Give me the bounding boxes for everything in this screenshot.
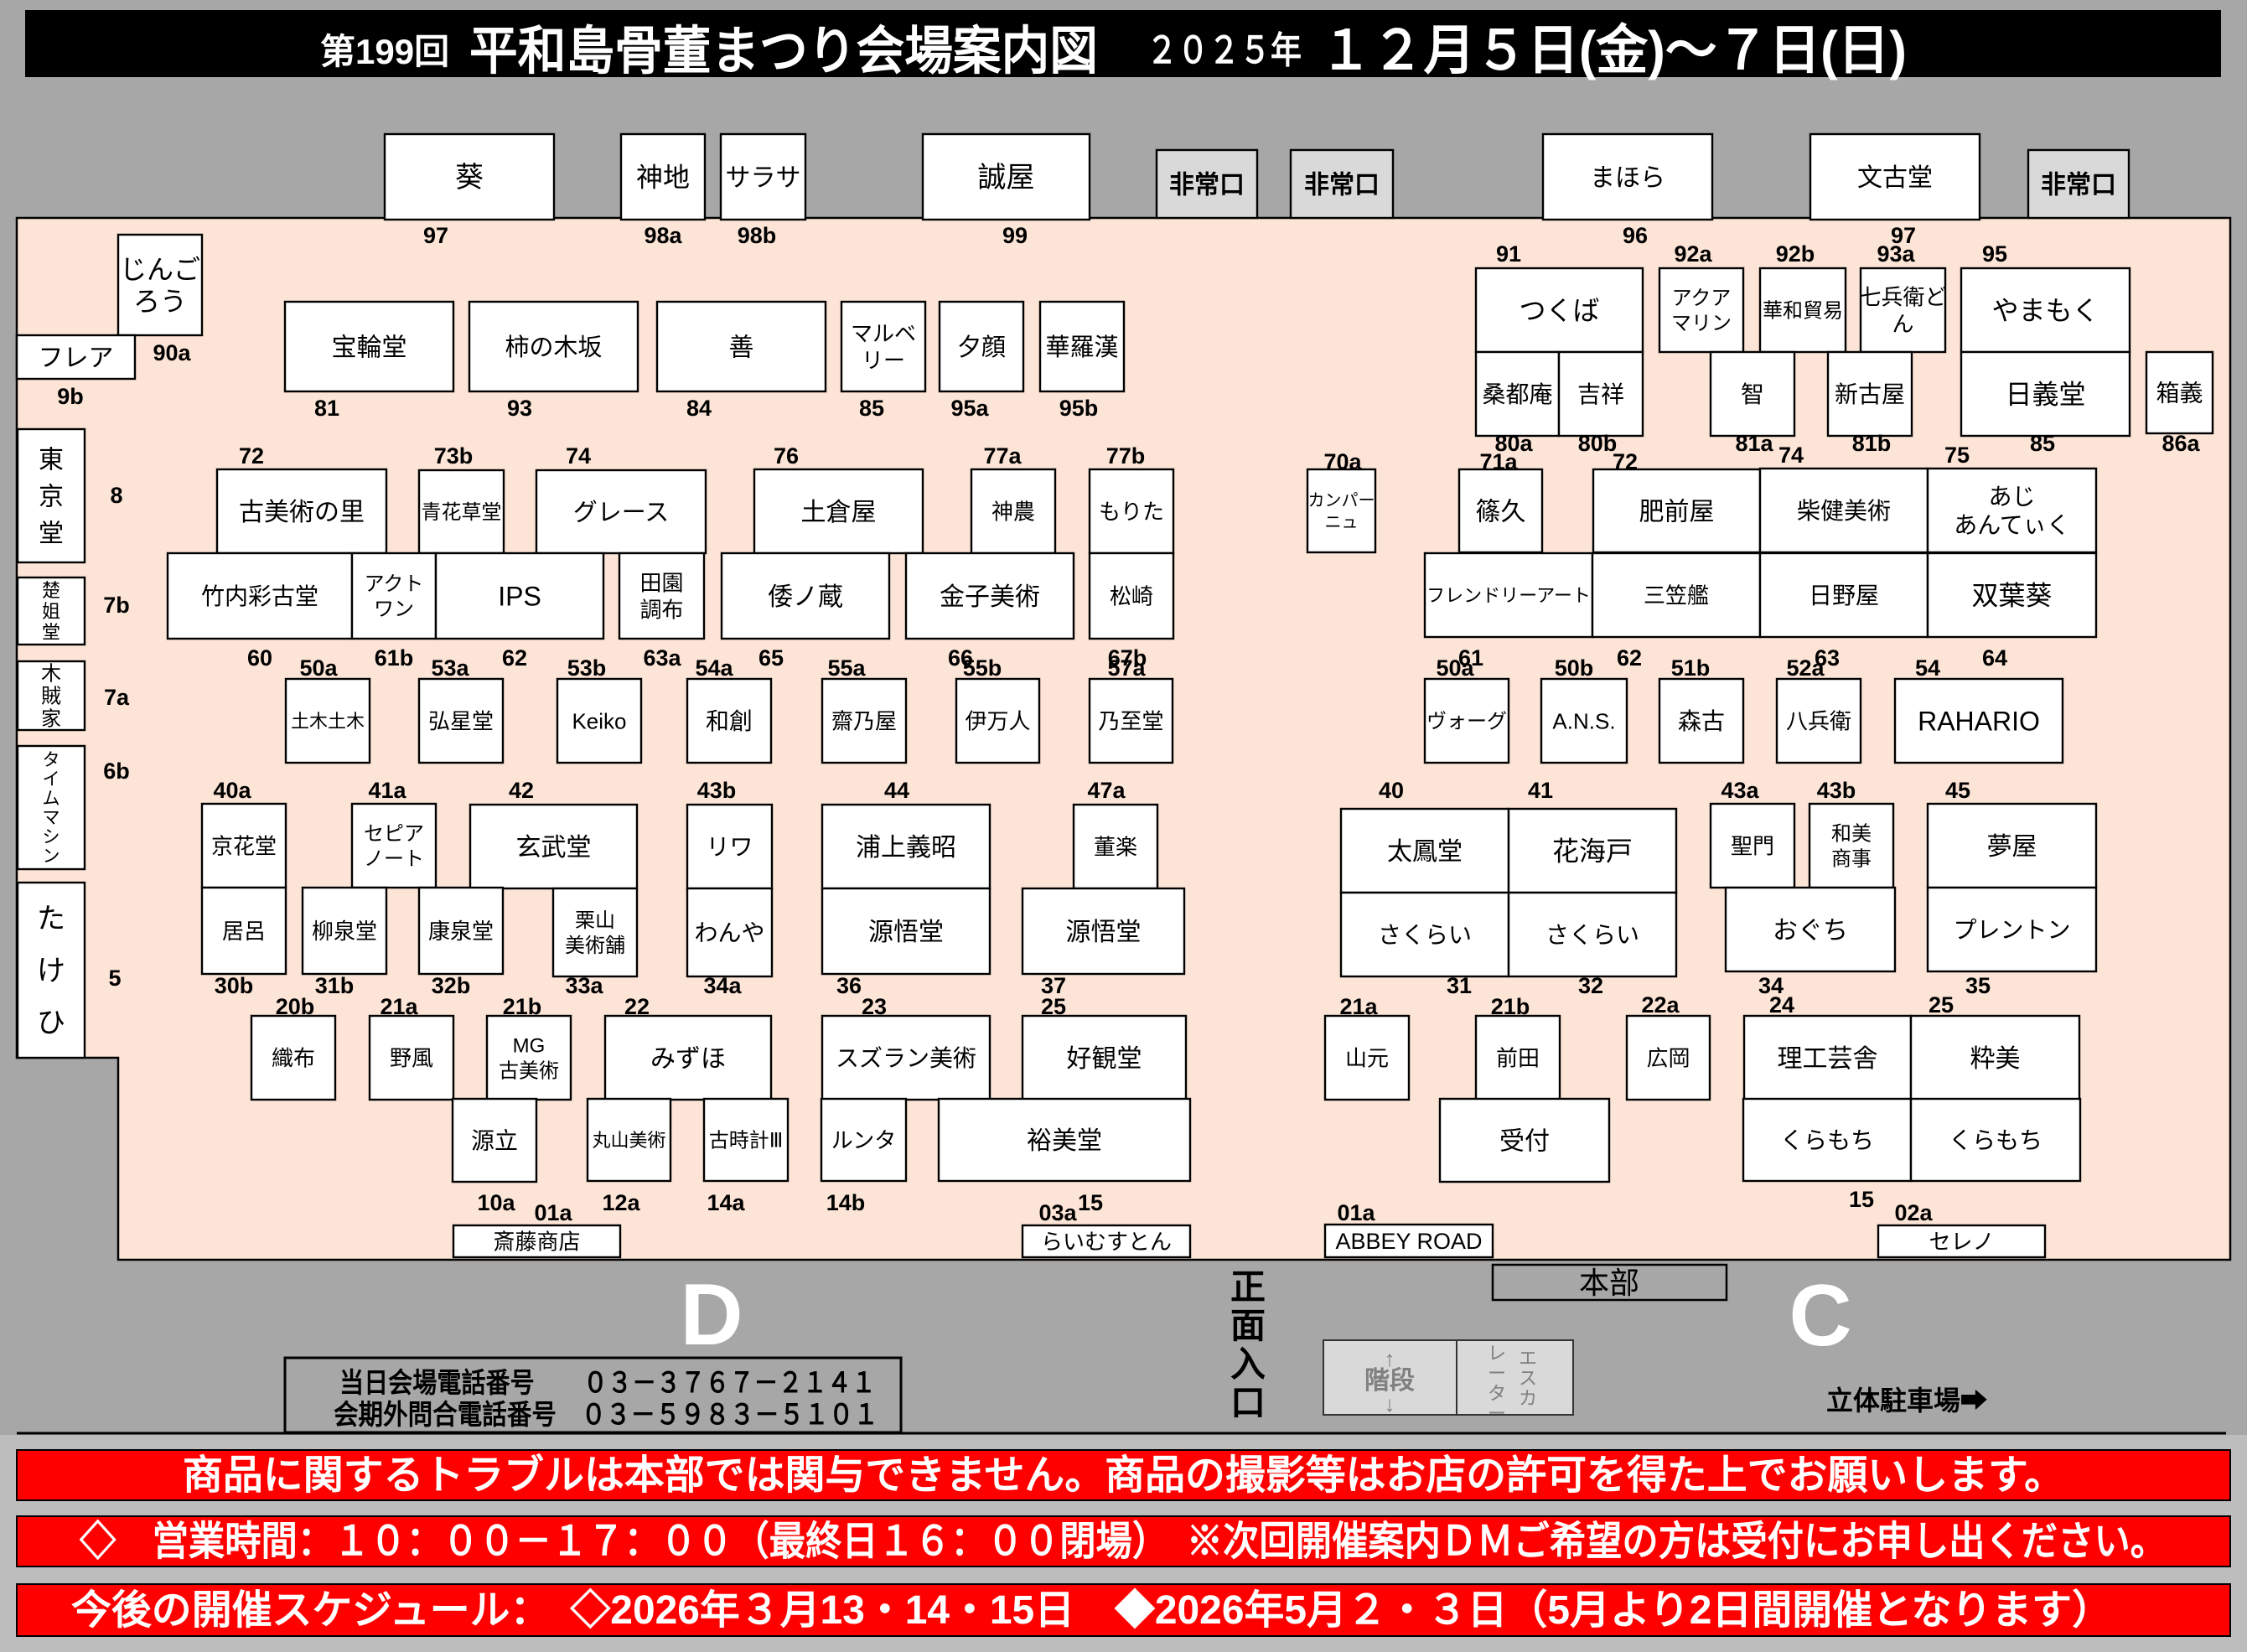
svg-text:90a: 90a <box>153 340 191 365</box>
svg-text:61b: 61b <box>375 645 414 671</box>
svg-text:誠屋: 誠屋 <box>978 162 1035 194</box>
svg-text:伊万人: 伊万人 <box>965 708 1030 733</box>
svg-text:康泉堂: 康泉堂 <box>428 919 494 944</box>
svg-text:青花草堂: 青花草堂 <box>422 501 502 524</box>
svg-text:聖門: 聖門 <box>1731 833 1774 858</box>
svg-text:41a: 41a <box>368 778 406 803</box>
svg-text:21b: 21b <box>1491 994 1530 1019</box>
svg-text:理工芸舎: 理工芸舎 <box>1778 1045 1878 1073</box>
svg-text:34a: 34a <box>703 973 742 998</box>
svg-text:三笠艦: 三笠艦 <box>1644 583 1709 608</box>
svg-text:当日会場電話番号 ０３－３７６７－２１４１: 当日会場電話番号 ０３－３７６７－２１４１ <box>339 1367 876 1398</box>
svg-text:弘星堂: 弘星堂 <box>428 708 494 733</box>
svg-text:50a: 50a <box>1436 655 1474 681</box>
svg-text:斎藤商店: 斎藤商店 <box>493 1229 580 1254</box>
svg-text:楚姐堂: 楚姐堂 <box>42 580 60 643</box>
svg-text:フレンドリーアート: フレンドリーアート <box>1426 585 1591 606</box>
svg-text:97: 97 <box>423 223 448 248</box>
svg-text:51b: 51b <box>1671 655 1711 681</box>
svg-text:ABBEY ROAD: ABBEY ROAD <box>1335 1229 1482 1254</box>
svg-text:乃至堂: 乃至堂 <box>1098 708 1163 733</box>
svg-text:95b: 95b <box>1059 396 1099 421</box>
svg-text:和創: 和創 <box>706 708 753 734</box>
svg-text:文古堂: 文古堂 <box>1857 164 1933 192</box>
svg-text:50a: 50a <box>299 655 338 681</box>
svg-text:非常口: 非常口 <box>2041 171 2116 199</box>
svg-text:山元: 山元 <box>1345 1045 1389 1070</box>
svg-text:くらもち: くらもち <box>1780 1127 1874 1153</box>
svg-text:33a: 33a <box>565 973 603 998</box>
svg-text:善: 善 <box>729 334 754 361</box>
svg-text:柳泉堂: 柳泉堂 <box>312 919 377 944</box>
svg-text:36: 36 <box>836 973 862 998</box>
svg-text:裕美堂: 裕美堂 <box>1027 1127 1102 1155</box>
svg-text:73b: 73b <box>434 443 474 469</box>
svg-text:22a: 22a <box>1641 992 1680 1018</box>
svg-text:55a: 55a <box>827 655 866 681</box>
svg-text:タイムマシン: タイムマシン <box>43 751 60 867</box>
svg-text:やまもく: やまもく <box>1991 296 2099 326</box>
svg-text:セレノ: セレノ <box>1929 1229 1994 1254</box>
svg-text:40: 40 <box>1379 778 1404 803</box>
svg-text:22: 22 <box>624 994 650 1019</box>
svg-text:54a: 54a <box>695 655 733 681</box>
svg-text:夢屋: 夢屋 <box>1987 833 2037 861</box>
svg-text:76: 76 <box>774 443 799 469</box>
svg-text:20b: 20b <box>276 994 315 1019</box>
svg-text:◇ 営業時間：１０：００－１７：００（最終日１６：００閉場）: ◇ 営業時間：１０：００－１７：００（最終日１６：００閉場） ※次回開催案内ＤＭ… <box>79 1519 2167 1564</box>
svg-text:60: 60 <box>247 645 272 671</box>
svg-text:72: 72 <box>1613 449 1638 474</box>
svg-text:プレントン: プレントン <box>1953 917 2070 943</box>
svg-text:55b: 55b <box>963 655 1002 681</box>
svg-text:箱義: 箱義 <box>2156 381 2203 407</box>
svg-text:華和貿易: 華和貿易 <box>1763 300 1843 323</box>
svg-text:6b: 6b <box>103 759 130 784</box>
svg-text:レーター: レーター <box>1488 1343 1506 1424</box>
svg-text:85: 85 <box>859 396 884 421</box>
svg-text:14b: 14b <box>826 1190 866 1215</box>
svg-text:夕顔: 夕顔 <box>957 334 1006 361</box>
svg-text:7b: 7b <box>103 593 130 618</box>
svg-text:篠久: 篠久 <box>1476 498 1526 526</box>
svg-text:粋美: 粋美 <box>1970 1045 2021 1073</box>
svg-text:74: 74 <box>566 443 591 469</box>
svg-text:01a: 01a <box>534 1200 572 1225</box>
svg-text:古時計Ⅲ: 古時計Ⅲ <box>709 1130 784 1152</box>
svg-text:32b: 32b <box>432 973 471 998</box>
svg-text:53a: 53a <box>431 655 469 681</box>
svg-text:23: 23 <box>862 994 887 1019</box>
svg-text:24: 24 <box>1769 992 1794 1018</box>
svg-text:32: 32 <box>1578 973 1603 998</box>
svg-text:非常口: 非常口 <box>1169 171 1245 199</box>
svg-text:神農: 神農 <box>991 499 1035 524</box>
svg-text:好観堂: 好観堂 <box>1067 1045 1142 1073</box>
svg-text:15: 15 <box>1078 1190 1103 1215</box>
svg-text:広岡: 広岡 <box>1646 1045 1690 1070</box>
svg-text:古美術の里: 古美術の里 <box>239 499 365 526</box>
svg-text:9b: 9b <box>57 384 84 409</box>
svg-text:35: 35 <box>1965 973 1991 998</box>
svg-text:みずほ: みずほ <box>650 1045 726 1073</box>
svg-text:IPS: IPS <box>498 582 541 612</box>
svg-text:丸山美術: 丸山美術 <box>592 1130 665 1151</box>
svg-text:齋乃屋: 齋乃屋 <box>831 708 897 733</box>
svg-text:57a: 57a <box>1107 655 1146 681</box>
svg-text:8: 8 <box>110 483 122 508</box>
svg-text:03a: 03a <box>1038 1200 1077 1225</box>
svg-text:40a: 40a <box>213 778 251 803</box>
svg-text:もりた: もりた <box>1099 499 1164 524</box>
svg-text:立体駐車場➡: 立体駐車場➡ <box>1826 1385 1987 1416</box>
svg-text:62: 62 <box>502 645 527 671</box>
svg-text:7a: 7a <box>104 685 130 710</box>
svg-text:まほら: まほら <box>1590 164 1665 192</box>
svg-text:八兵衛: 八兵衛 <box>1786 708 1851 733</box>
svg-text:43b: 43b <box>1817 778 1856 803</box>
svg-text:21b: 21b <box>503 994 542 1019</box>
svg-text:第199回: 第199回 <box>320 32 449 71</box>
svg-text:ヴォーグ: ヴォーグ <box>1426 711 1507 733</box>
svg-text:１２月５日(金)～７日(日): １２月５日(金)～７日(日) <box>1320 20 1907 80</box>
svg-text:93: 93 <box>507 396 532 421</box>
svg-text:花海戸: 花海戸 <box>1552 836 1633 867</box>
svg-text:今後の開催スケジュール： ◇2026年３月13・14・15日: 今後の開催スケジュール： ◇2026年３月13・14・15日 ◆2026年5月２… <box>71 1587 2112 1633</box>
svg-text:98b: 98b <box>738 223 777 248</box>
svg-text:サラサ: サラサ <box>726 164 801 192</box>
svg-text:02a: 02a <box>1894 1200 1933 1225</box>
svg-text:わんや: わんや <box>694 920 764 946</box>
svg-text:くらもち: くらもち <box>1949 1127 2042 1153</box>
svg-text:↓: ↓ <box>1385 1391 1395 1416</box>
svg-text:42: 42 <box>509 778 534 803</box>
svg-text:さくらい: さくらい <box>1378 922 1472 948</box>
svg-text:吉祥: 吉祥 <box>1577 381 1624 407</box>
svg-text:華羅漢: 華羅漢 <box>1045 334 1118 361</box>
svg-text:Keiko: Keiko <box>572 708 626 733</box>
svg-text:81a: 81a <box>1735 431 1773 456</box>
svg-text:43a: 43a <box>1721 778 1759 803</box>
svg-text:商品に関するトラブルは本部では関与できません。商品の撮影等は: 商品に関するトラブルは本部では関与できません。商品の撮影等はお店の許可を得た上で… <box>183 1453 2064 1498</box>
svg-text:会期外問合電話番号 ０３－５９８３－５１０１: 会期外問合電話番号 ０３－５９８３－５１０１ <box>334 1399 878 1430</box>
svg-text:25: 25 <box>1929 992 1954 1018</box>
svg-text:浦上義昭: 浦上義昭 <box>856 834 956 862</box>
svg-text:柴健美術: 柴健美術 <box>1797 498 1891 524</box>
svg-text:さくらい: さくらい <box>1545 922 1639 948</box>
svg-text:50b: 50b <box>1555 655 1594 681</box>
svg-text:宝輪堂: 宝輪堂 <box>332 334 407 361</box>
svg-text:77a: 77a <box>983 443 1022 469</box>
svg-text:金子美術: 金子美術 <box>940 583 1040 611</box>
svg-text:太鳳堂: 太鳳堂 <box>1387 838 1463 866</box>
svg-text:本部: 本部 <box>1579 1266 1639 1300</box>
svg-text:源立: 源立 <box>471 1128 518 1154</box>
svg-text:84: 84 <box>686 396 712 421</box>
svg-text:85: 85 <box>2030 431 2055 456</box>
svg-text:野風: 野風 <box>390 1045 433 1070</box>
svg-text:松崎: 松崎 <box>1110 583 1153 608</box>
svg-text:フレア: フレア <box>39 344 114 372</box>
svg-text:53b: 53b <box>567 655 607 681</box>
svg-text:ルンタ: ルンタ <box>831 1127 896 1152</box>
svg-text:董楽: 董楽 <box>1094 834 1137 859</box>
svg-text:65: 65 <box>758 645 784 671</box>
svg-text:10a: 10a <box>477 1190 515 1215</box>
svg-text:源悟堂: 源悟堂 <box>1066 919 1142 946</box>
svg-text:43b: 43b <box>697 778 737 803</box>
svg-text:柿の木坂: 柿の木坂 <box>505 334 602 361</box>
svg-text:15: 15 <box>1849 1187 1874 1212</box>
svg-text:86a: 86a <box>2162 431 2200 456</box>
svg-text:31b: 31b <box>315 973 355 998</box>
svg-text:スズラン美術: スズラン美術 <box>836 1045 976 1071</box>
svg-text:75: 75 <box>1944 443 1970 468</box>
svg-text:95a: 95a <box>950 396 989 421</box>
svg-text:らいむすとん: らいむすとん <box>1041 1229 1172 1254</box>
svg-text:98a: 98a <box>644 223 682 248</box>
svg-text:リワ: リワ <box>706 834 753 860</box>
svg-text:C: C <box>1789 1267 1851 1365</box>
svg-text:14a: 14a <box>707 1190 745 1215</box>
svg-text:54: 54 <box>1915 655 1940 681</box>
svg-text:71a: 71a <box>1479 449 1518 474</box>
svg-text:階段: 階段 <box>1364 1366 1415 1395</box>
svg-text:47a: 47a <box>1087 778 1126 803</box>
svg-text:91: 91 <box>1496 241 1521 267</box>
svg-text:グレース: グレース <box>573 499 670 526</box>
svg-text:A.N.S.: A.N.S. <box>1552 708 1615 733</box>
svg-text:エスカ: エスカ <box>1519 1348 1537 1409</box>
svg-text:31: 31 <box>1447 973 1472 998</box>
svg-text:日義堂: 日義堂 <box>2005 380 2085 410</box>
svg-text:62: 62 <box>1617 645 1642 671</box>
svg-text:21a: 21a <box>380 994 418 1019</box>
svg-text:77b: 77b <box>1106 443 1146 469</box>
svg-text:70a: 70a <box>1323 449 1362 474</box>
svg-text:41: 41 <box>1528 778 1553 803</box>
svg-text:30b: 30b <box>215 973 254 998</box>
svg-text:正面入口: 正面入口 <box>1230 1267 1266 1422</box>
svg-text:25: 25 <box>1041 994 1066 1019</box>
svg-text:45: 45 <box>1945 778 1970 803</box>
svg-text:森古: 森古 <box>1678 708 1725 734</box>
svg-text:96: 96 <box>1623 223 1648 248</box>
svg-text:D: D <box>680 1266 743 1364</box>
svg-text:平和島骨董まつり会場案内図: 平和島骨董まつり会場案内図 <box>469 23 1098 80</box>
svg-text:非常口: 非常口 <box>1304 171 1380 199</box>
svg-text:２０２５年: ２０２５年 <box>1147 30 1302 71</box>
svg-text:81b: 81b <box>1852 431 1892 456</box>
svg-text:智: 智 <box>1741 381 1764 407</box>
svg-text:74: 74 <box>1778 443 1804 468</box>
svg-text:土倉屋: 土倉屋 <box>801 499 877 526</box>
svg-text:64: 64 <box>1982 645 2007 671</box>
svg-text:RAHARIO: RAHARIO <box>1918 707 2040 737</box>
svg-text:源悟堂: 源悟堂 <box>868 919 944 946</box>
svg-text:日野屋: 日野屋 <box>1809 583 1879 608</box>
svg-text:肥前屋: 肥前屋 <box>1639 498 1715 526</box>
svg-text:おぐち: おぐち <box>1773 917 1848 945</box>
svg-text:前田: 前田 <box>1496 1045 1540 1070</box>
svg-text:12a: 12a <box>602 1190 640 1215</box>
svg-text:99: 99 <box>1002 223 1028 248</box>
svg-text:神地: 神地 <box>636 163 690 193</box>
svg-text:52a: 52a <box>1786 655 1825 681</box>
svg-text:44: 44 <box>884 778 909 803</box>
svg-text:92a: 92a <box>1674 241 1712 267</box>
svg-text:21a: 21a <box>1339 994 1378 1019</box>
svg-text:たけひ: たけひ <box>37 904 65 1039</box>
svg-text:72: 72 <box>239 443 264 469</box>
svg-text:葵: 葵 <box>455 162 484 194</box>
svg-text:92b: 92b <box>1776 241 1815 267</box>
svg-text:95: 95 <box>1982 241 2007 267</box>
svg-text:93a: 93a <box>1877 241 1915 267</box>
svg-text:つくば: つくば <box>1519 296 1599 326</box>
svg-text:63a: 63a <box>643 645 681 671</box>
svg-text:受付: 受付 <box>1499 1127 1550 1155</box>
svg-text:竹内彩古堂: 竹内彩古堂 <box>201 583 318 609</box>
svg-text:玄武堂: 玄武堂 <box>516 834 592 862</box>
svg-text:京花堂: 京花堂 <box>211 833 277 858</box>
svg-text:5: 5 <box>108 966 121 991</box>
svg-text:居呂: 居呂 <box>222 919 266 944</box>
svg-text:木賊家: 木賊家 <box>41 663 61 731</box>
svg-text:土木土木: 土木土木 <box>291 711 365 732</box>
svg-text:新古屋: 新古屋 <box>1835 381 1905 407</box>
svg-text:織布: 織布 <box>272 1045 315 1070</box>
svg-text:81: 81 <box>314 396 339 421</box>
svg-text:倭ノ蔵: 倭ノ蔵 <box>768 583 843 611</box>
svg-text:双葉葵: 双葉葵 <box>1971 581 2052 611</box>
svg-text:東京堂: 東京堂 <box>39 446 64 547</box>
svg-text:80b: 80b <box>1578 431 1618 456</box>
svg-text:01a: 01a <box>1337 1200 1375 1225</box>
svg-text:桑都庵: 桑都庵 <box>1482 381 1552 407</box>
